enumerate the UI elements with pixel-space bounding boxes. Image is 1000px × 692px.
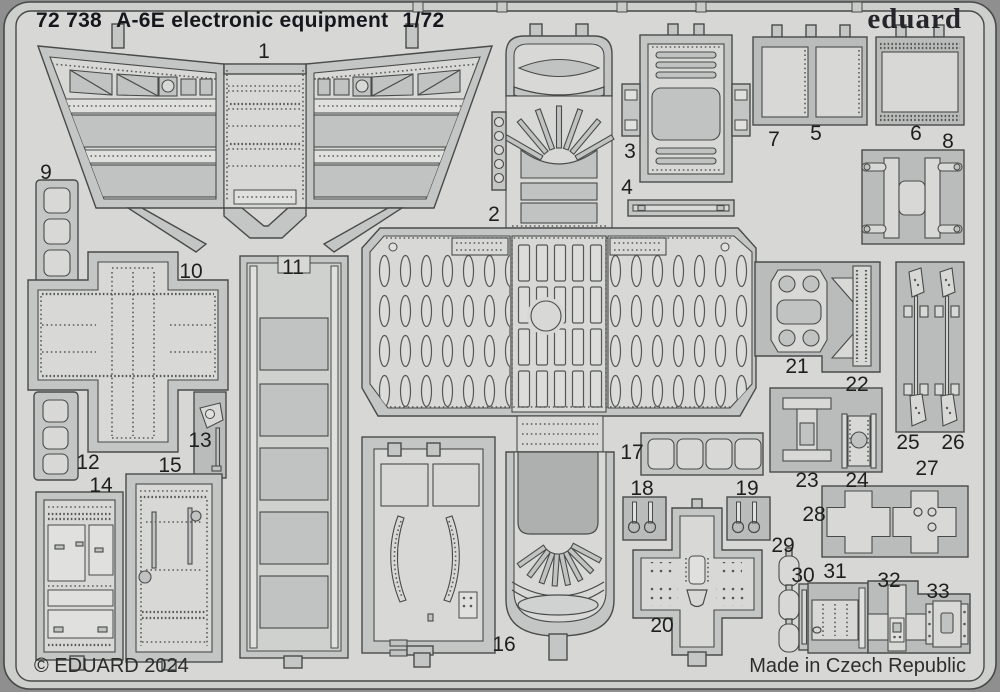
part-label-7: 7 [768, 128, 780, 152]
part-27-28-shape [822, 486, 968, 557]
part-16-shape [362, 437, 495, 667]
part-11-shape [240, 256, 348, 668]
part-label-12: 12 [76, 451, 99, 475]
part-label-32: 32 [877, 569, 900, 593]
part-6-shape [876, 25, 964, 125]
part-31-shape [808, 583, 868, 653]
part-label-4: 4 [621, 176, 633, 200]
part-3-shape [622, 24, 750, 182]
sheet-scale: 1/72 [402, 9, 444, 32]
part-label-13: 13 [188, 429, 211, 453]
made-in-text: Made in Czech Republic [749, 655, 966, 678]
part-12-shape [34, 392, 78, 480]
part-label-1: 1 [258, 40, 270, 64]
copyright-text: © EDUARD 2024 [34, 655, 189, 678]
sheet-title: A-6E electronic equipment [116, 9, 388, 32]
part-5-7-shape [753, 25, 867, 125]
part-label-29: 29 [771, 534, 794, 558]
part-15-shape [126, 474, 222, 670]
part-label-17: 17 [620, 441, 643, 465]
part-label-14: 14 [89, 474, 112, 498]
part-label-6: 6 [910, 122, 922, 146]
part-label-19: 19 [735, 477, 758, 501]
part-label-11: 11 [282, 256, 304, 280]
part-label-16: 16 [492, 633, 515, 657]
part-2-top-shape [492, 24, 614, 228]
part-25-26-shape [896, 262, 964, 432]
pe-fret-photo: 72 738A-6E electronic equipment1/72 edua… [0, 0, 1000, 692]
part-label-28: 28 [802, 503, 825, 527]
catalog-number: 72 738 [36, 9, 102, 32]
part-label-8: 8 [942, 130, 954, 154]
part-label-20: 20 [650, 614, 673, 638]
part-label-24: 24 [845, 469, 868, 493]
part-label-27: 27 [915, 457, 938, 481]
part-label-30: 30 [791, 564, 814, 588]
sheet-header: 72 738A-6E electronic equipment1/72 [36, 9, 459, 33]
part-label-18: 18 [630, 477, 653, 501]
part-label-21: 21 [785, 355, 808, 379]
part-18-shape [623, 497, 666, 540]
part-2-bottom-shape [506, 452, 614, 660]
part-label-10: 10 [179, 260, 202, 284]
part-label-3: 3 [624, 140, 636, 164]
part-14-shape [36, 492, 123, 670]
part-label-2: 2 [488, 203, 500, 227]
part-23-24-shape [770, 388, 882, 472]
part-label-26: 26 [941, 431, 964, 455]
part-17-shape [641, 433, 763, 475]
part-label-23: 23 [795, 469, 818, 493]
part-8-shape [862, 150, 964, 244]
part-9-shape [36, 180, 78, 284]
part-label-33: 33 [926, 580, 949, 604]
part-label-25: 25 [896, 431, 919, 455]
part-4-shape [628, 200, 734, 216]
part-label-31: 31 [823, 560, 846, 584]
part-label-15: 15 [158, 454, 181, 478]
part-label-5: 5 [810, 122, 822, 146]
part-label-22: 22 [845, 373, 868, 397]
fret-svg [0, 0, 1000, 692]
eduard-logo: eduard [867, 3, 962, 36]
part-19-shape [727, 497, 770, 540]
part-21-22-shape [755, 262, 880, 372]
part-label-9: 9 [40, 161, 52, 185]
